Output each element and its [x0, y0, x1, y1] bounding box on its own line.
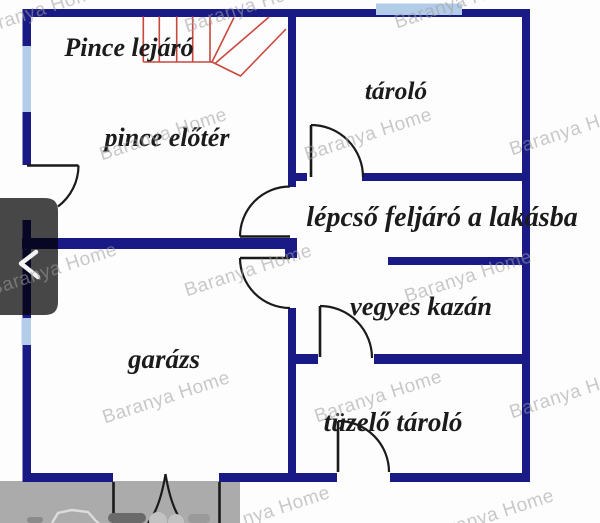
- svg-text:garázs: garázs: [127, 344, 200, 374]
- svg-text:lépcső feljáró a lakásba: lépcső feljáró a lakásba: [306, 202, 577, 233]
- svg-text:tároló: tároló: [365, 76, 427, 105]
- svg-text:Pince lejáró: Pince lejáró: [63, 33, 193, 62]
